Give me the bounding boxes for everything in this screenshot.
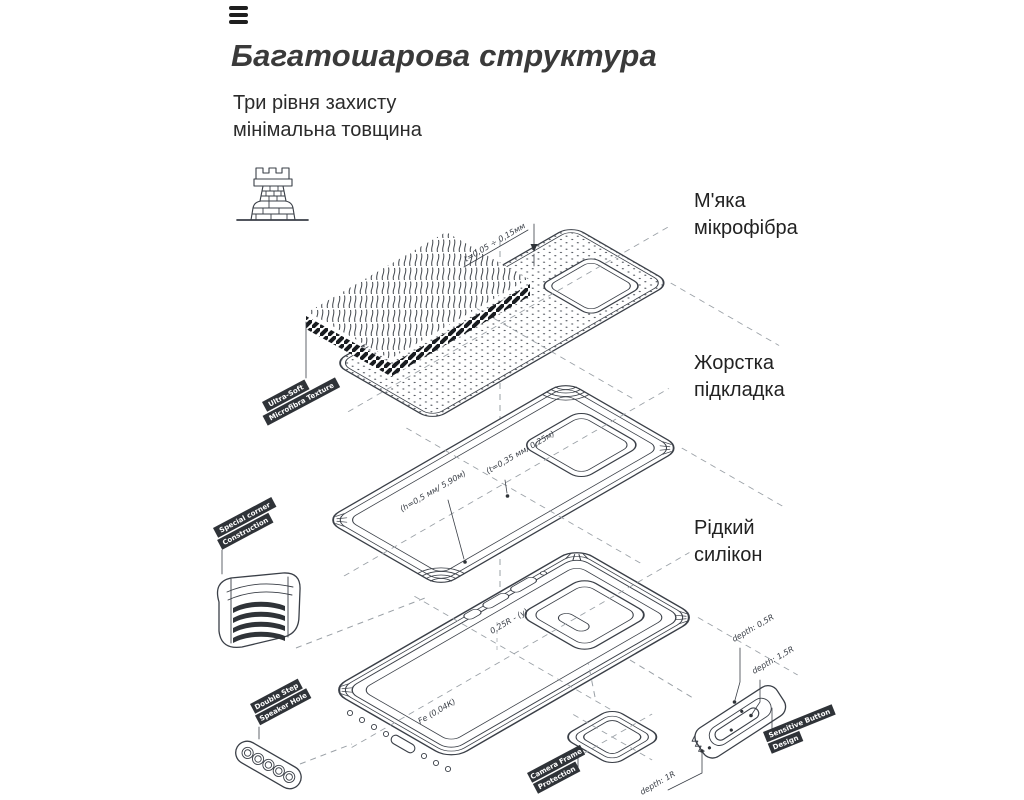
dim-button-depth-side: depth: 1R: [639, 769, 677, 796]
case-structure-infographic: Багатошарова структура Три рівня захисту…: [0, 0, 1024, 800]
ribbon-microfibra-texture: Ultra-Soft Microfibra Texture: [257, 366, 340, 425]
svg-text:depth: 0,5R: depth: 0,5R: [731, 613, 776, 644]
dim-button-depth-inner: depth: 1,5R: [751, 645, 796, 676]
dim-button-depth-outer: depth: 0,5R: [731, 613, 776, 644]
speaker-grommets-detail: [232, 737, 306, 793]
layer-silicone-case: [252, 495, 850, 800]
ribbon-speaker-hole: Double Step Speaker Hole: [249, 677, 311, 725]
fortress-tower-icon: [237, 168, 308, 220]
svg-text:depth: 1R: depth: 1R: [639, 769, 677, 796]
svg-text:depth: 1,5R: depth: 1,5R: [751, 645, 796, 676]
exploded-diagram: t=0,05 ÷ 0,15мм (t=0,35 мм/ 0,25м) (h=0,…: [0, 0, 1024, 800]
corner-bumper-detail: [218, 573, 301, 647]
ribbon-camera-protection: Camera Frame Protection: [527, 745, 591, 794]
ribbon-corner-construction: Special corner Construction: [211, 497, 282, 550]
